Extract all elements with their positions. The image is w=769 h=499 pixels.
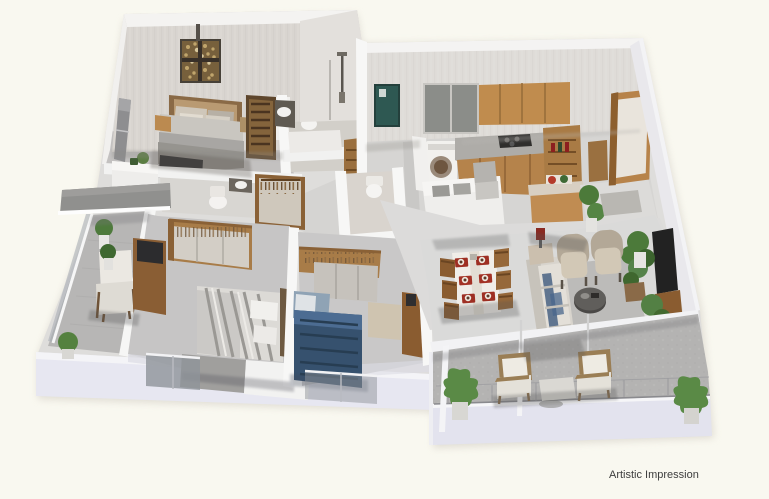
svg-text:Artistic Impression: Artistic Impression bbox=[609, 469, 699, 481]
